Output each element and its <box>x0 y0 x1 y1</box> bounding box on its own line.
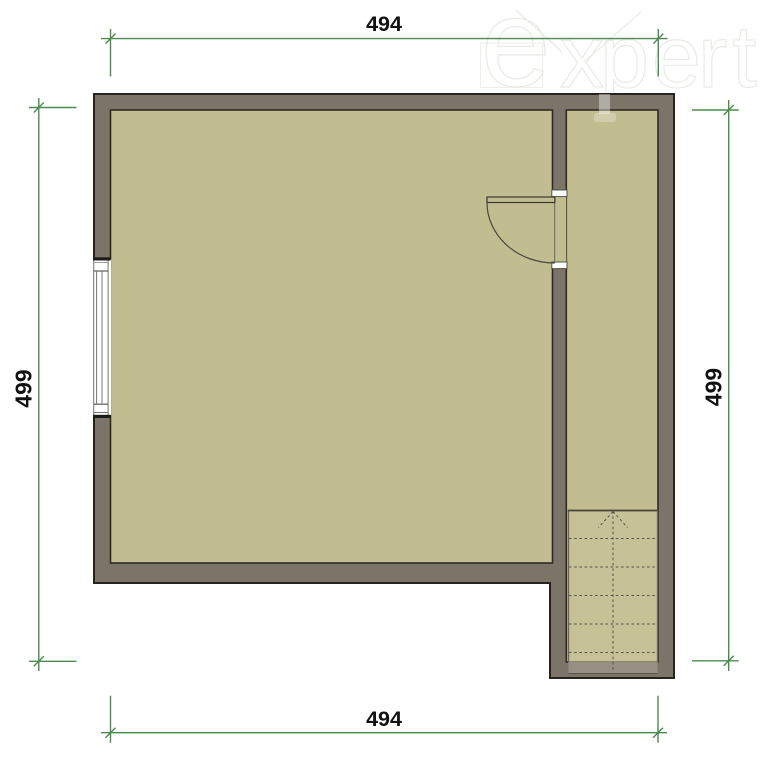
svg-text:t: t <box>732 7 756 106</box>
svg-text:499: 499 <box>11 369 37 407</box>
svg-text:r: r <box>698 7 727 106</box>
svg-text:494: 494 <box>366 12 402 36</box>
svg-text:499: 499 <box>701 368 727 406</box>
svg-text:e: e <box>652 7 701 106</box>
svg-text:494: 494 <box>366 707 402 731</box>
svg-text:x: x <box>560 7 604 106</box>
svg-text:p: p <box>600 7 649 106</box>
